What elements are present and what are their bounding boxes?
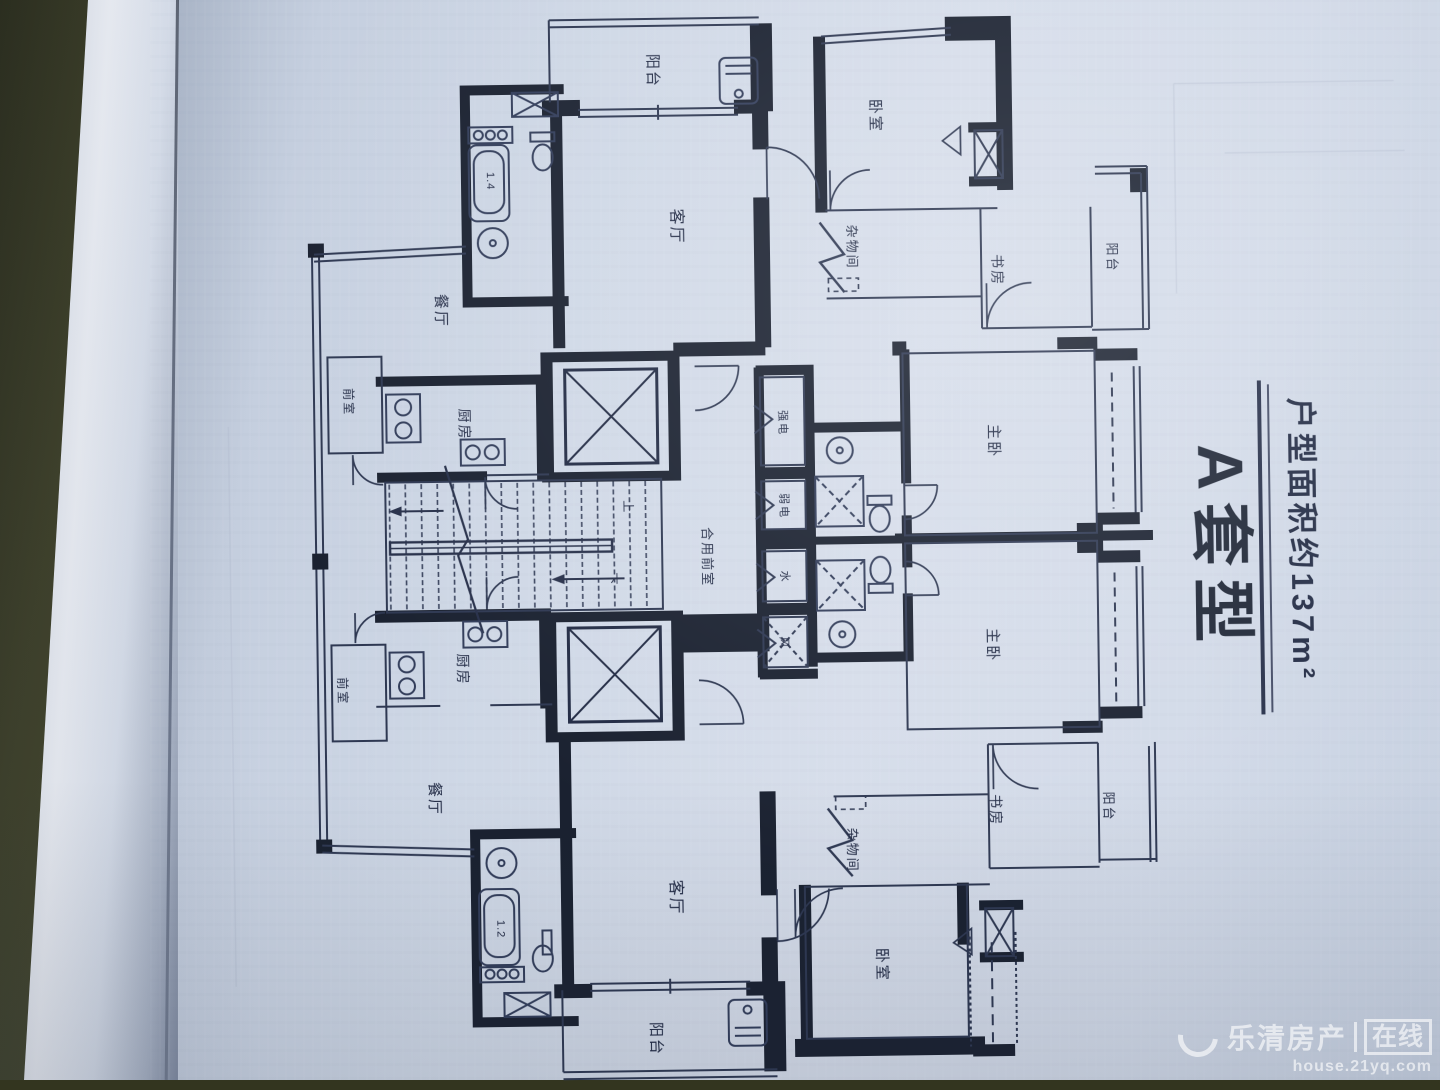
watermark-badge: 在线 bbox=[1364, 1019, 1432, 1055]
watermark-divider bbox=[1354, 1022, 1357, 1052]
label-stairs-down: 下 bbox=[604, 572, 621, 586]
label-balcony-bottom-right: 阳台 bbox=[1100, 791, 1119, 821]
label-shared-vestibule: 合用前室 bbox=[698, 527, 718, 587]
label-bedroom-top: 卧室 bbox=[865, 99, 886, 133]
label-study-bottom: 书房 bbox=[986, 794, 1006, 826]
kitchen-bottom-fixtures bbox=[389, 621, 508, 699]
label-dining-top: 餐厅 bbox=[431, 294, 452, 328]
label-shaft-weak-electric: 弱电 bbox=[776, 493, 792, 519]
label-balcony-top-right: 阳台 bbox=[1103, 242, 1122, 272]
watermark-url: house.21yq.com bbox=[1178, 1058, 1432, 1076]
label-bathtub-bottom: 1.2 bbox=[494, 920, 506, 938]
bifold-door-symbols bbox=[820, 222, 867, 876]
label-shaft-air: 风 bbox=[776, 636, 792, 649]
label-storage-top: 杂物间 bbox=[843, 224, 863, 269]
door-swings bbox=[348, 126, 1040, 963]
watermark-brand: 乐清房产 bbox=[1227, 1017, 1347, 1057]
label-living-room-top: 客厅 bbox=[666, 208, 691, 244]
label-bedroom-bottom: 卧室 bbox=[872, 948, 893, 982]
label-bathtub-top: 1.4 bbox=[484, 172, 496, 190]
label-kitchen-top: 厨房 bbox=[454, 408, 474, 440]
stair-arrows bbox=[389, 504, 565, 586]
label-master-bedroom-top: 主卧 bbox=[984, 424, 1005, 458]
plan-subtitle: 户型面积约137m² bbox=[1281, 397, 1330, 682]
watermark: 乐清房产 在线 house.21yq.com bbox=[1178, 1017, 1432, 1076]
watermark-swoosh-icon bbox=[1170, 1009, 1226, 1065]
label-vestibule-top: 前室 bbox=[340, 388, 357, 416]
label-shaft-water: 水 bbox=[777, 570, 793, 583]
core-bathroom-lower-fixtures bbox=[816, 557, 893, 648]
label-master-bedroom-bottom: 主卧 bbox=[983, 628, 1004, 662]
bathroom-bottom-left-fixtures bbox=[478, 847, 553, 1017]
label-dining-bottom: 餐厅 bbox=[425, 782, 446, 816]
label-living-room-bottom: 客厅 bbox=[666, 879, 691, 915]
structural-walls bbox=[305, 14, 1161, 1078]
floorplan: 阳台 卧室 客厅 杂物间 书房 阳台 餐厅 前室 厨房 强电 主卧 弱电 合用前… bbox=[0, 0, 1440, 1090]
label-storage-bottom: 杂物间 bbox=[844, 828, 864, 873]
kitchen-top-fixtures bbox=[386, 393, 505, 467]
label-balcony-bottom: 阳台 bbox=[646, 1022, 667, 1056]
label-kitchen-bottom: 厨房 bbox=[453, 653, 473, 685]
label-stairs-up: 上 bbox=[620, 500, 637, 514]
elevator-bottom bbox=[568, 627, 661, 722]
label-balcony-top: 阳台 bbox=[643, 54, 664, 88]
elevator-top bbox=[565, 369, 658, 464]
label-vestibule-bottom: 前室 bbox=[334, 677, 351, 705]
watermark-brand-row: 乐清房产 在线 bbox=[1178, 1017, 1432, 1057]
label-shaft-strong-electric: 强电 bbox=[775, 410, 791, 436]
label-study-top: 书房 bbox=[987, 254, 1007, 286]
core-bathroom-upper-fixtures bbox=[815, 437, 892, 533]
photo-of-floorplan-page: 阳台 卧室 客厅 杂物间 书房 阳台 餐厅 前室 厨房 强电 主卧 弱电 合用前… bbox=[0, 0, 1440, 1080]
bathroom-top-left-fixtures bbox=[468, 92, 560, 258]
